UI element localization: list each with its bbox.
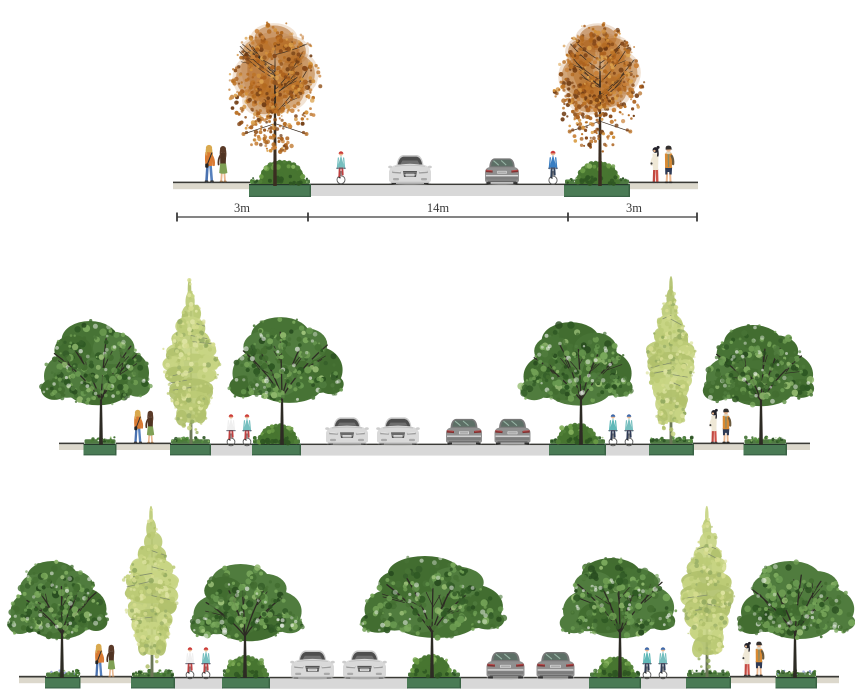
svg-text:3m: 3m bbox=[626, 201, 642, 215]
svg-text:14m: 14m bbox=[427, 201, 450, 215]
svg-text:3m: 3m bbox=[234, 201, 250, 215]
